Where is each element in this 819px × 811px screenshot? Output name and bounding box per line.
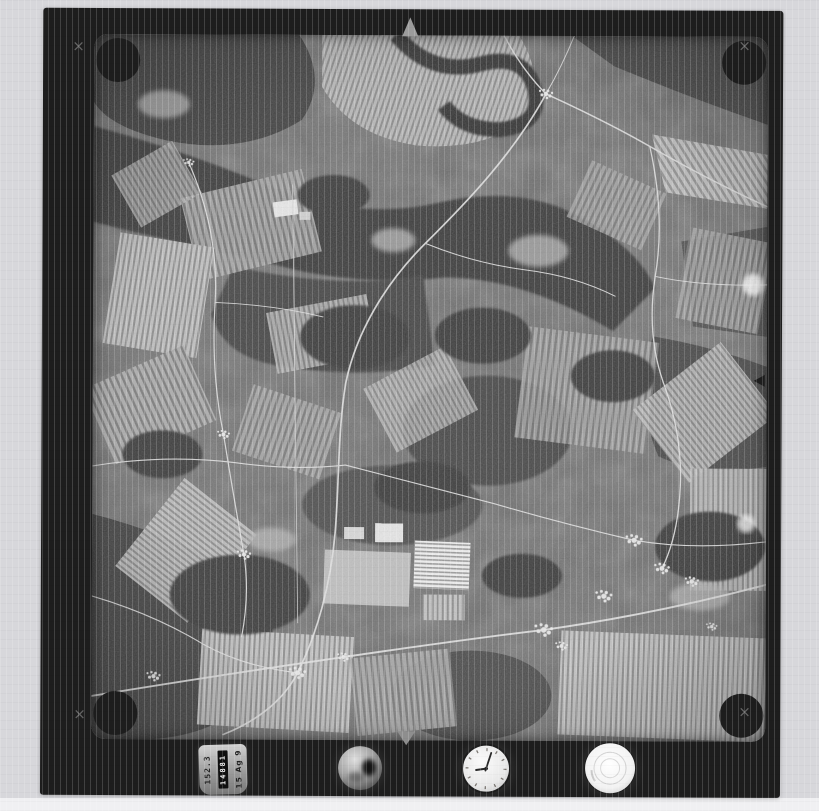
clock-face (461, 744, 511, 794)
altimeter-dial (584, 742, 636, 794)
aerial-photograph (91, 34, 768, 742)
fiducial-x-mark: × (73, 707, 86, 722)
corner-notch (96, 38, 140, 82)
data-block-right-value: 15 Ag 9 (233, 749, 243, 788)
aerial-photo-image (91, 34, 768, 742)
scan-background-strip (0, 798, 819, 811)
fiducial-x-mark: × (72, 39, 85, 54)
fiducial-triangle-top (402, 17, 418, 36)
fiducial-x-mark: × (738, 705, 751, 720)
data-block-counter-value: 14881 (217, 751, 228, 788)
corner-notch (93, 691, 137, 735)
level-ball-gauge (338, 746, 382, 790)
fiducial-x-mark: × (738, 39, 751, 54)
data-block-left-value: 152.3 (203, 755, 213, 784)
fiducial-triangle-right (754, 375, 765, 387)
scanned-aerial-photo-page: × × × × 152.3 14881 15 Ag 9 (0, 0, 819, 811)
fiducial-triangle-bottom (397, 731, 415, 745)
frame-data-block: 152.3 14881 15 Ag 9 (198, 744, 248, 795)
altimeter-face (584, 742, 636, 794)
clock-dial (461, 744, 511, 794)
frame-data-block-text: 152.3 14881 15 Ag 9 (202, 748, 243, 791)
film-frame: × × × × 152.3 14881 15 Ag 9 (40, 8, 783, 798)
